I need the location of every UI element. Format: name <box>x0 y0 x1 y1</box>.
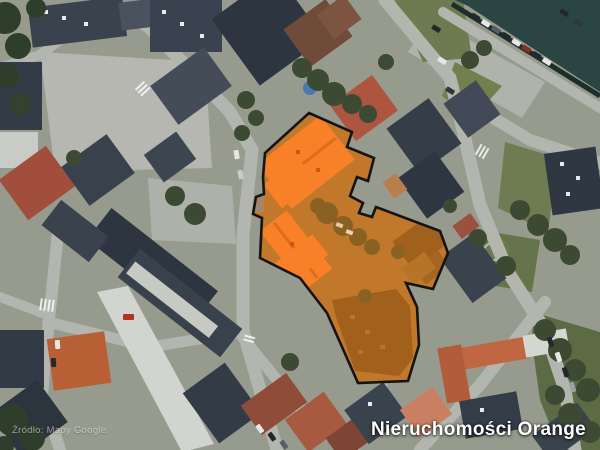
fire-truck <box>123 314 134 320</box>
brand-watermark: Nieruchomości Orange <box>371 419 586 441</box>
satellite-image <box>0 0 600 450</box>
source-attribution: Źródło: Mapy Google <box>12 425 106 436</box>
map-canvas: Źródło: Mapy Google Nieruchomości Orange <box>0 0 600 450</box>
